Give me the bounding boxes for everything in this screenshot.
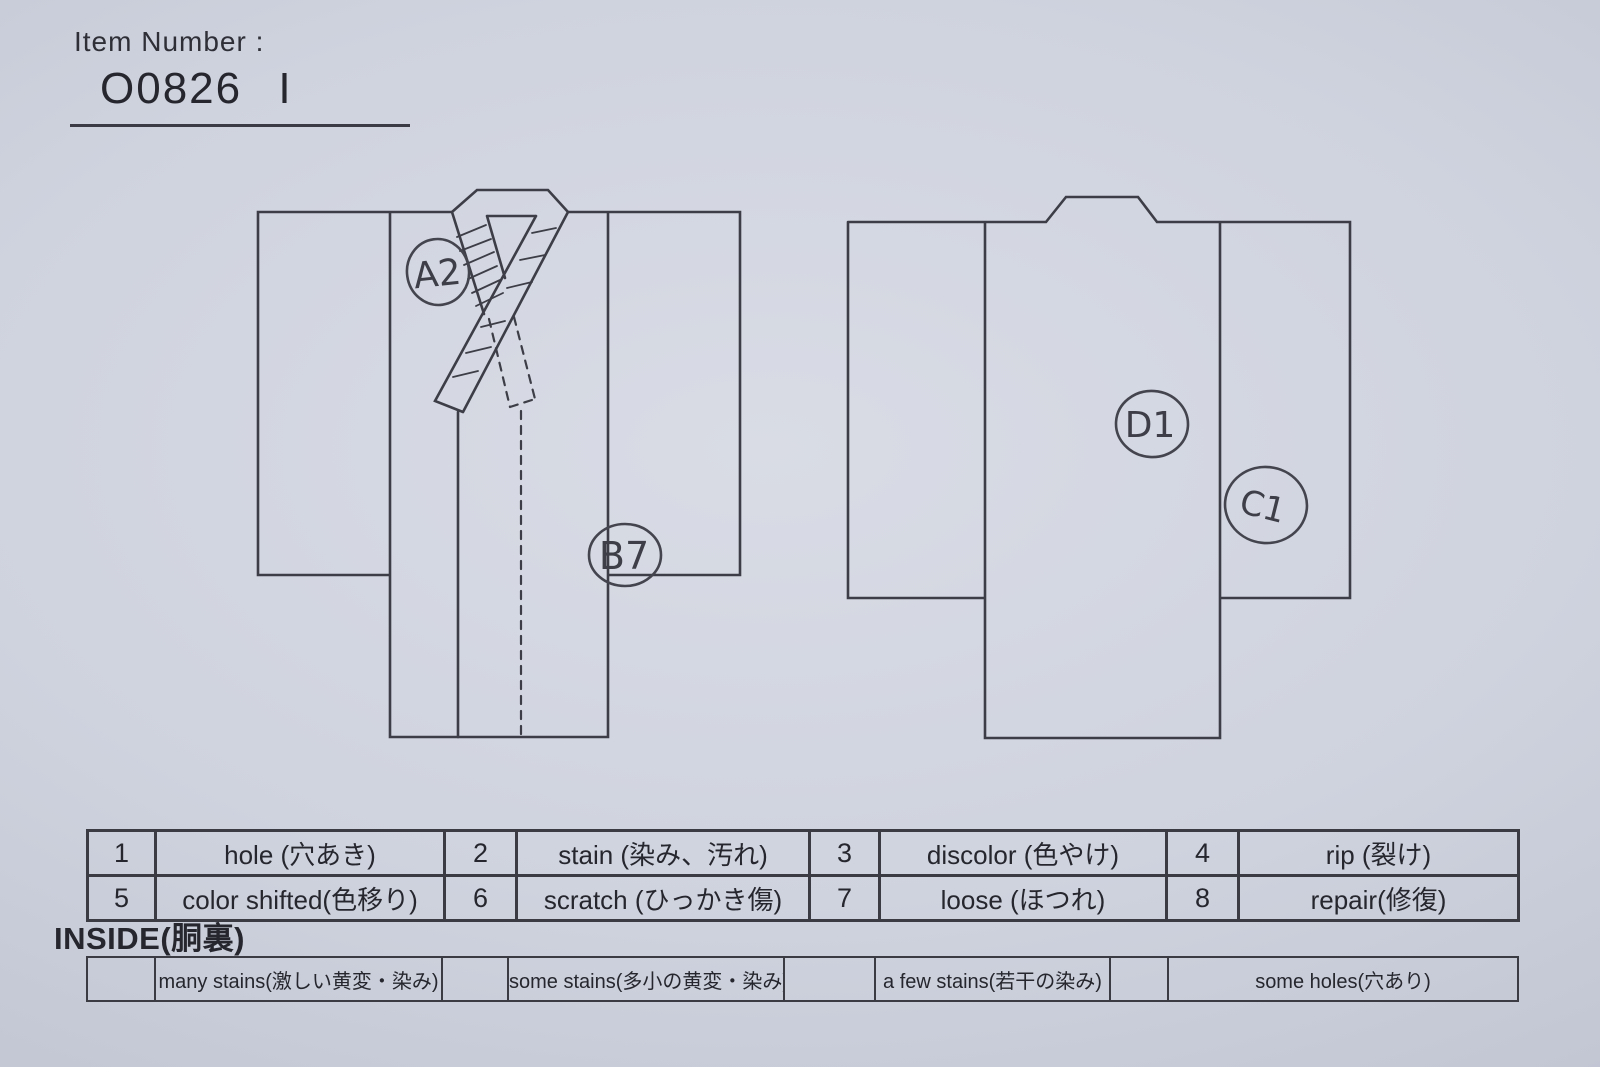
inside-option-label: many stains(激しい黄変・染み) xyxy=(155,957,442,1001)
defect-num: 4 xyxy=(1167,831,1239,876)
legend-row-2: 5 color shifted(色移り) 6 scratch (ひっかき傷) 7… xyxy=(88,876,1519,921)
inside-checkbox-cell xyxy=(1110,957,1168,1001)
defect-label: scratch (ひっかき傷) xyxy=(517,876,810,921)
inside-checkbox-cell xyxy=(87,957,155,1001)
front-collar-hatching xyxy=(453,225,556,377)
mark-d1-label: D1 xyxy=(1125,405,1176,446)
defect-label: loose (ほつれ) xyxy=(880,876,1167,921)
inside-section-heading: INSIDE(胴裏) xyxy=(54,913,245,958)
inside-option-label: some holes(穴あり) xyxy=(1168,957,1518,1001)
inside-option-label: some stains(多小の黄変・染み) xyxy=(508,957,784,1001)
defect-num: 8 xyxy=(1167,876,1239,921)
defect-label: repair(修復) xyxy=(1239,876,1519,921)
inspection-sheet: Item Number : O0826 I A2 B7 D1 C1 xyxy=(0,0,1600,1067)
defect-num: 2 xyxy=(445,831,517,876)
defect-num: 7 xyxy=(810,876,880,921)
legend-row-1: 1 hole (穴あき) 2 stain (染み、汚れ) 3 discolor … xyxy=(88,831,1519,876)
mark-c1-label: C1 xyxy=(1236,482,1290,532)
inside-checkbox-cell xyxy=(784,957,875,1001)
inside-checkbox-cell xyxy=(442,957,508,1001)
defect-num: 6 xyxy=(445,876,517,921)
mark-b7-label: B7 xyxy=(599,534,649,578)
defect-label: hole (穴あき) xyxy=(156,831,445,876)
defect-label: stain (染み、汚れ) xyxy=(517,831,810,876)
defect-num: 1 xyxy=(88,831,156,876)
inside-options-table: many stains(激しい黄変・染み) some stains(多小の黄変・… xyxy=(86,956,1519,1002)
front-hidden-seam-dashed xyxy=(489,317,535,734)
mark-a2-label: A2 xyxy=(411,252,463,298)
defect-label: rip (裂け) xyxy=(1239,831,1519,876)
defect-label: discolor (色やけ) xyxy=(880,831,1167,876)
defect-num: 3 xyxy=(810,831,880,876)
front-kimono-outline xyxy=(258,212,740,737)
inside-option-label: a few stains(若干の染み) xyxy=(875,957,1110,1001)
inside-options-row: many stains(激しい黄変・染み) some stains(多小の黄変・… xyxy=(87,957,1518,1001)
defect-legend-table: 1 hole (穴あき) 2 stain (染み、汚れ) 3 discolor … xyxy=(86,829,1520,922)
